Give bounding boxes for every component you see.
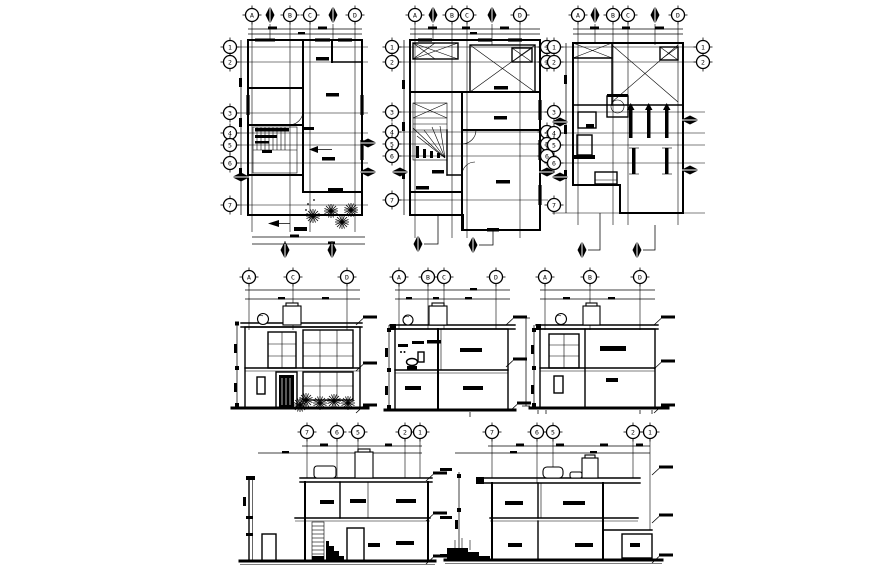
section-marker-icon — [469, 236, 478, 254]
furniture-marks — [600, 346, 626, 382]
grid-bubble-label: 7 — [552, 201, 556, 209]
building-outline — [385, 324, 515, 417]
grid-bubble-label: B — [426, 273, 430, 281]
building-outline — [232, 323, 368, 408]
side-elevation: A B D — [530, 268, 675, 415]
grid-bubbles: A B C D 1 2 3 4 5 6 7 1 2 4 5 6 — [383, 6, 557, 210]
ground-floor-plan: A B C D 1 2 3 4 5 6 7 — [221, 6, 378, 260]
grid-bubble-label: 6 — [535, 428, 539, 436]
compound-wall — [243, 476, 276, 561]
grid-bubble-label: B — [611, 11, 615, 19]
grid-bubble-label: 1 — [701, 43, 705, 51]
grid-bubble-label: 6 — [552, 159, 556, 167]
grid-bubble-label: D — [518, 11, 522, 19]
vent-arrows — [627, 103, 672, 174]
grid-bubble-label: 1 — [648, 428, 652, 436]
grid-bubble-label: 7 — [390, 196, 394, 204]
furniture-marks — [505, 501, 640, 547]
section-marker-icon — [329, 6, 338, 24]
grid-bubble-label: 1 — [552, 43, 556, 51]
longitudinal-section-2: 7 6 5 2 1 — [440, 423, 673, 564]
grid-bubble-label: 3 — [228, 109, 232, 117]
upper-windows — [268, 330, 353, 368]
grid-bubble-label: 2 — [552, 58, 556, 66]
level-markers — [506, 316, 531, 412]
grid-bubble-label: A — [413, 11, 417, 19]
grid-bubble-label: 7 — [305, 428, 309, 436]
grid-bubble-label: 2 — [631, 428, 635, 436]
dimension-lines — [455, 444, 650, 559]
grid-bubble-label: A — [247, 273, 251, 281]
building-outline — [445, 477, 662, 564]
section-marker-icon — [591, 6, 600, 24]
water-tank — [556, 303, 601, 325]
grid-bubbles: A C D — [240, 268, 357, 287]
grid-bubble-label: 3 — [552, 108, 556, 116]
grid-bubble-label: A — [397, 273, 401, 281]
staircase — [413, 103, 447, 160]
grid-bubble-label: B — [450, 11, 454, 19]
grid-bubble-label: 5 — [551, 428, 555, 436]
grid-bubble-label: 6 — [228, 159, 232, 167]
section-marker-icon — [578, 241, 587, 259]
grid-bubble-label: D — [353, 11, 357, 19]
grid-bubble-label: B — [588, 273, 592, 281]
grid-bubble-label: 5 — [228, 141, 232, 149]
toilet-fixture — [398, 340, 441, 370]
lower-window — [554, 376, 563, 393]
grid-bubble-label: D — [494, 273, 498, 281]
upper-window — [549, 334, 579, 368]
section-marker-icon — [651, 6, 660, 24]
grid-bubble-label: 2 — [403, 428, 407, 436]
section-marker-icon — [633, 241, 642, 259]
grid-bubble-label: 1 — [390, 43, 394, 51]
water-tank — [258, 303, 302, 325]
void-cross-marks — [413, 43, 535, 92]
grid-bubble-label: 2 — [701, 58, 705, 66]
grid-bubble-label: 1 — [418, 428, 422, 436]
roof-objects — [573, 112, 617, 184]
ramp-steps — [447, 538, 490, 560]
grid-bubble-label: C — [308, 11, 312, 19]
level-markers — [356, 316, 377, 414]
grid-bubble-label: B — [288, 11, 292, 19]
grid-bubbles: A B C D — [390, 268, 506, 287]
level-markers — [652, 466, 673, 564]
grid-bubble-label: 1 — [228, 43, 232, 51]
grid-bubble-label: D — [345, 273, 349, 281]
grid-bubble-label: A — [576, 11, 580, 19]
level-markers — [654, 316, 675, 414]
grid-bubble-label: 3 — [390, 108, 394, 116]
doors — [462, 130, 476, 175]
grid-bubble-label: C — [626, 11, 630, 19]
section-leaders — [414, 215, 494, 254]
dimension-lines — [258, 444, 422, 454]
grid-bubble-label: A — [543, 273, 547, 281]
section-marker-icon — [266, 6, 275, 24]
cross-section: A B C D — [385, 268, 531, 418]
grid-bubble-label: 7 — [228, 201, 232, 209]
grid-bubble-label: C — [442, 273, 446, 281]
water-tank — [403, 303, 447, 325]
grid-bubbles: A B D — [536, 268, 650, 287]
lower-windows — [257, 372, 353, 400]
grid-bubbles: A B C D 1 2 3 4 5 6 7 — [221, 6, 378, 260]
grid-bubble-label: 5 — [552, 141, 556, 149]
drawing-canvas: A B C D 1 2 3 4 5 6 7 — [0, 0, 875, 574]
building-outline — [530, 324, 668, 414]
grid-bubble-label: C — [465, 11, 469, 19]
staircase — [253, 127, 297, 173]
front-elevation: A C D — [232, 268, 377, 414]
first-floor-plan: A B C D 1 2 3 4 5 6 7 1 2 4 5 6 — [383, 6, 557, 255]
grid-bubble-label: C — [291, 273, 295, 281]
roof-objects — [543, 455, 598, 478]
grid-bubbles: 7 6 5 2 1 — [483, 423, 660, 442]
section-marker-icon — [391, 168, 409, 177]
grid-bubble-label: D — [638, 273, 642, 281]
section-marker-icon — [488, 6, 497, 24]
section-marker-icon — [429, 6, 438, 24]
grid-bubbles: 7 6 5 2 1 — [298, 423, 430, 442]
longitudinal-section-1: 7 6 5 2 1 — [240, 423, 447, 565]
grid-bubble-label: 2 — [228, 58, 232, 66]
grid-bubble-label: 5 — [356, 428, 360, 436]
grid-bubble-label: 7 — [490, 428, 494, 436]
terrace-cross-marks — [573, 43, 678, 102]
door — [347, 528, 364, 561]
roof-plan: A B C D 1 2 3 4 5 6 7 1 2 — [545, 6, 713, 260]
stair-steps — [326, 541, 344, 561]
staircase — [312, 522, 344, 561]
windows — [418, 39, 542, 206]
cad-drawing-sheet: A B C D 1 2 3 4 5 6 7 — [0, 0, 875, 574]
section-leaders — [578, 213, 656, 259]
grid-bubble-label: D — [676, 11, 680, 19]
grid-bubble-label: 6 — [390, 152, 394, 160]
grid-bubble-label: 2 — [390, 58, 394, 66]
grid-bubble-label: 6 — [335, 428, 339, 436]
grid-bubble-label: A — [250, 11, 254, 19]
